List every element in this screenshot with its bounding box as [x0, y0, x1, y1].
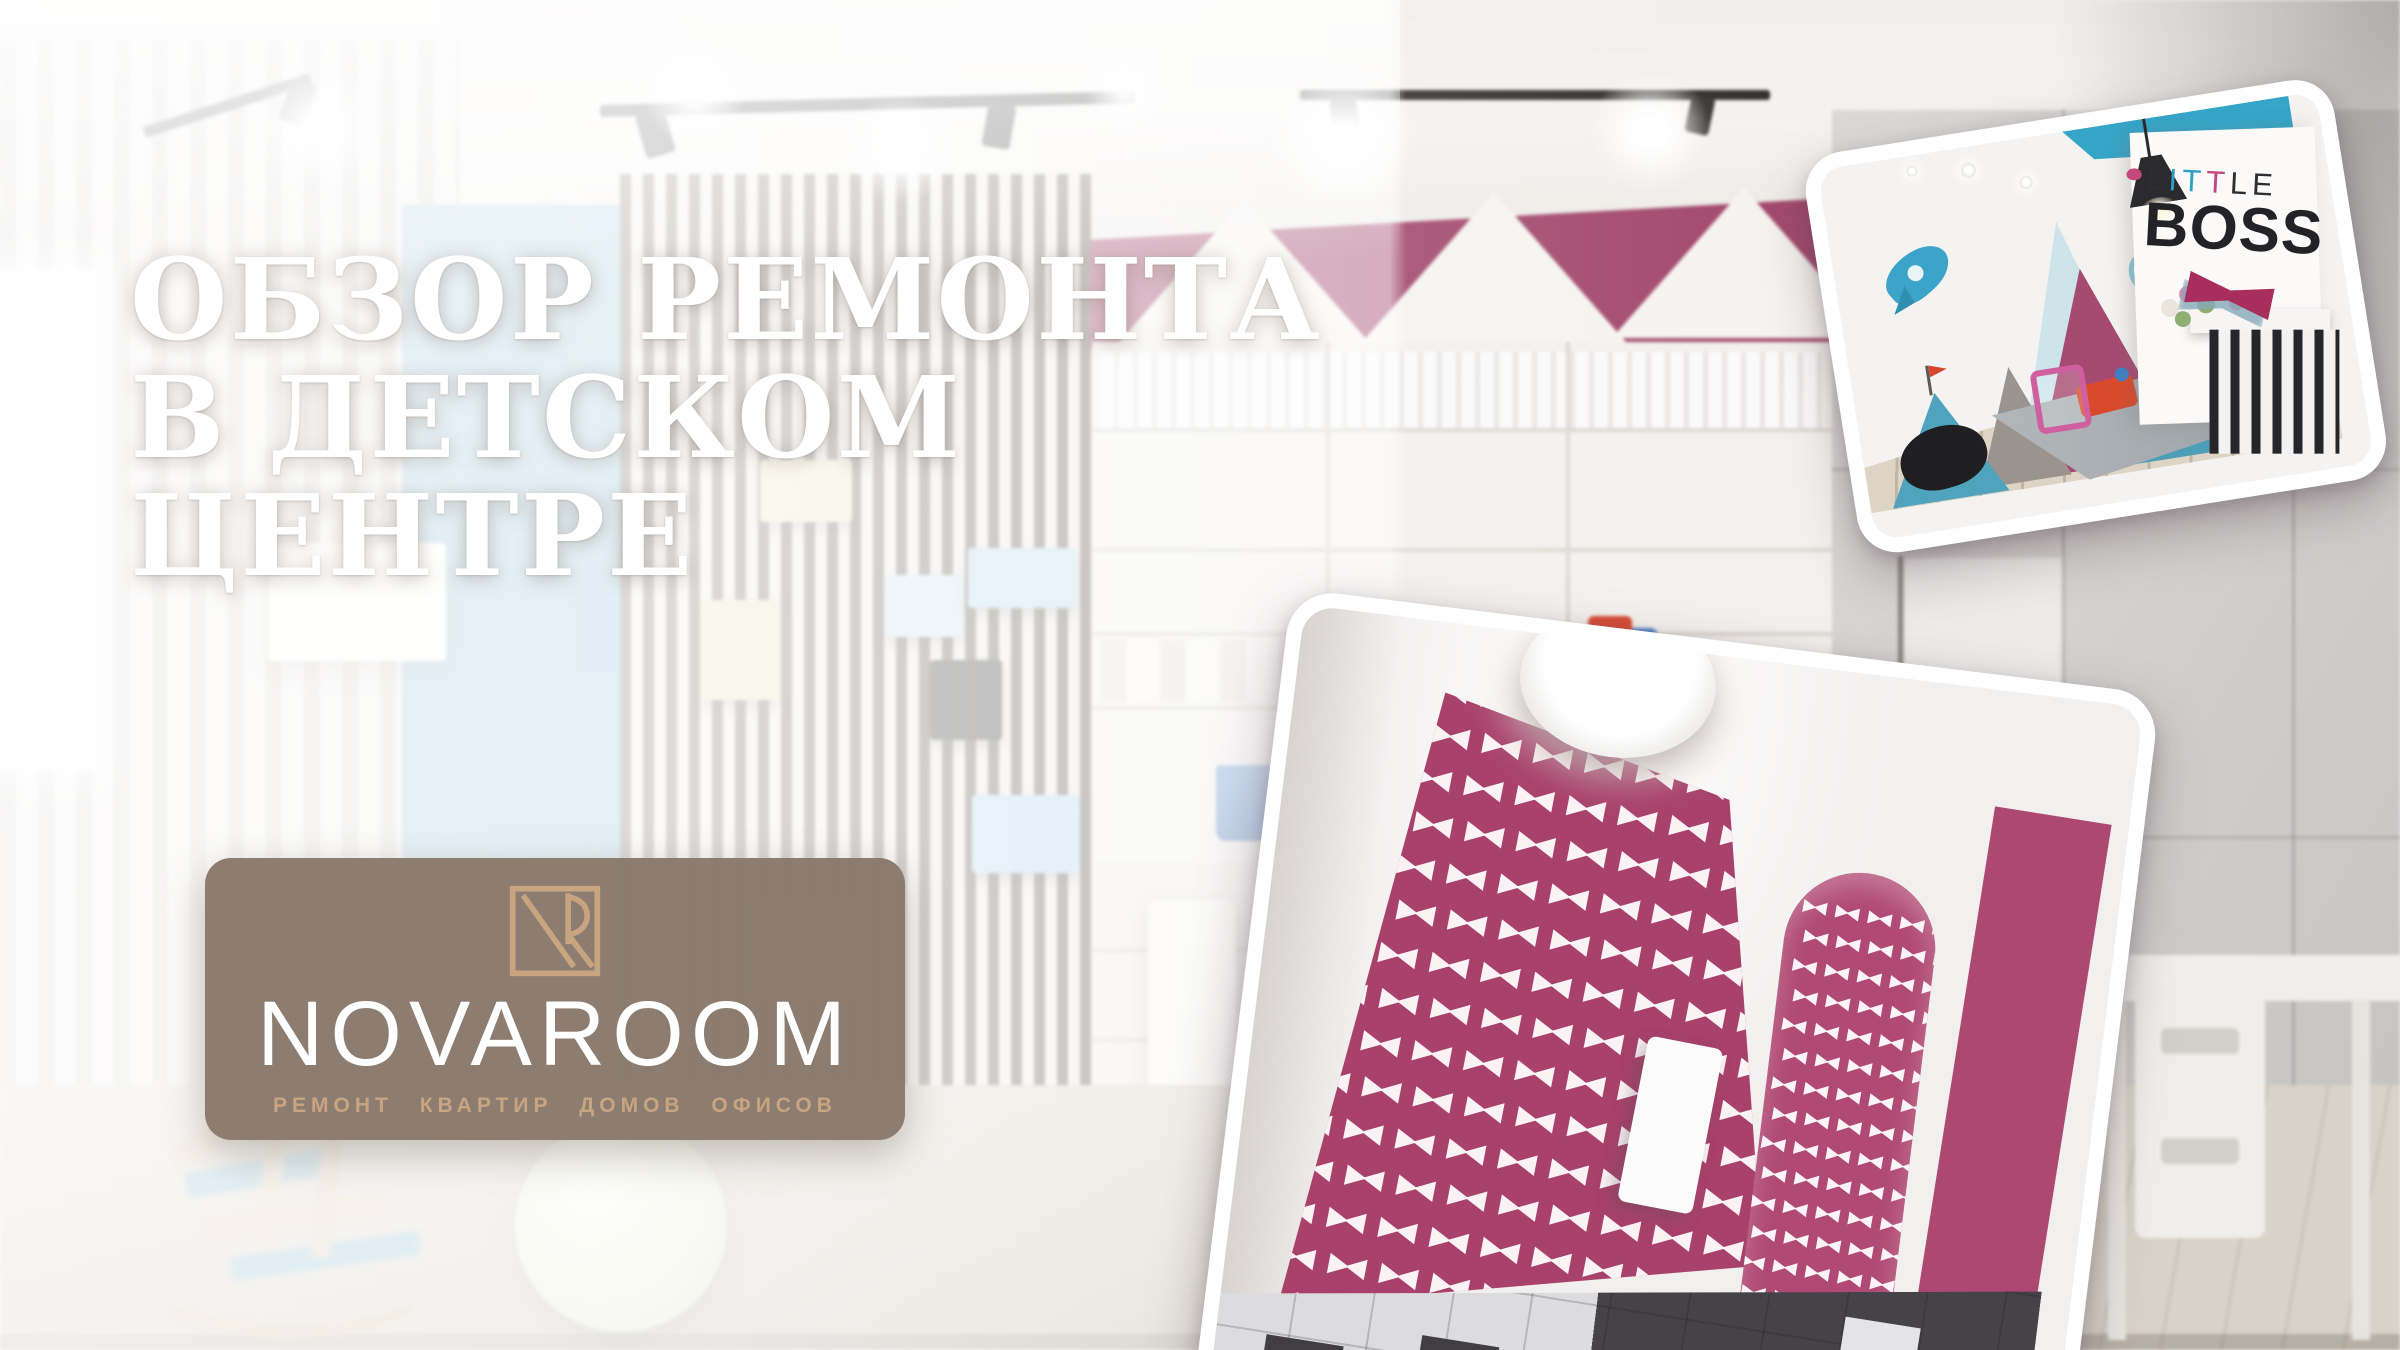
- toy-stroller: [2029, 363, 2092, 435]
- sign-word-boss: BOSS: [2142, 197, 2324, 262]
- light-flare: [1080, 45, 1170, 135]
- thumbnail-canvas: ОБЗОР РЕМОНТА В ДЕТСКОМ ЦЕНТРЕ NOVAROOM …: [0, 0, 2400, 1350]
- ball-toy: [515, 1120, 727, 1332]
- novaroom-monogram-icon: [508, 884, 602, 978]
- red-flag: [1928, 363, 1948, 378]
- light-flare: [248, 58, 388, 198]
- title-line-2: В ДЕТСКОМ: [130, 360, 1322, 478]
- light-flare: [1580, 62, 1720, 202]
- brand-tagline: РЕМОНТ КВАРТИР ДОМОВ ОФИСОВ: [205, 1094, 905, 1118]
- kids-photo: [930, 660, 1002, 740]
- high-chair: [1148, 900, 1236, 1100]
- title-line-3: ЦЕНТРЕ: [130, 478, 1322, 596]
- little-boss-sign: LITTLE BOSS: [2142, 161, 2326, 262]
- brand-panel: NOVAROOM РЕМОНТ КВАРТИР ДОМОВ ОФИСОВ: [205, 858, 905, 1140]
- title-line-1: ОБЗОР РЕМОНТА: [130, 242, 1322, 360]
- ceiling-spot-light: [1906, 165, 1919, 178]
- window: [0, 270, 95, 770]
- rocket-fin: [1884, 286, 1915, 316]
- inset-photo-bathroom: ▶◀ ▶◀ ▶◀ ▶◀ ▶◀ ▶◀ ▶◀ ▶◀ ▶◀ ▶◀ ▶◀ ▶◀ ▶◀ ▶…: [1168, 588, 2161, 1350]
- light-flare: [1262, 58, 1427, 223]
- brand-name: NOVAROOM: [205, 986, 905, 1082]
- table-leg: [2352, 1000, 2370, 1340]
- rocket-decal: [1877, 234, 1959, 313]
- page-title: ОБЗОР РЕМОНТА В ДЕТСКОМ ЦЕНТРЕ: [130, 242, 1322, 596]
- light-flare: [840, 90, 960, 210]
- ceiling-spot-light: [2019, 175, 2034, 190]
- kids-drawing: [700, 600, 780, 700]
- chair-slot: [2161, 1138, 2239, 1164]
- light-flare: [640, 40, 750, 150]
- ceiling-spot-light: [1960, 162, 1977, 179]
- chair-slot: [2161, 1028, 2239, 1054]
- rocket-window: [1904, 262, 1927, 285]
- kids-drawing: [972, 795, 1080, 873]
- reception-desk-stripes: [2209, 330, 2339, 454]
- inset-photo-playroom: LITTLE BOSS: [1800, 74, 2392, 558]
- kids-chair: [2135, 988, 2265, 1238]
